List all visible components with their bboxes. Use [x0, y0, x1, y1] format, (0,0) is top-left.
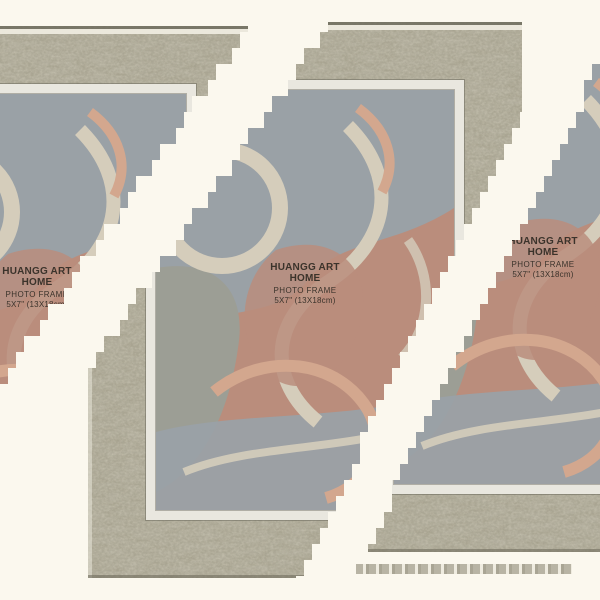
frame-bottom-edge-line	[326, 549, 600, 552]
brand-text: HUANGG ART HOME	[500, 236, 586, 258]
brand-text: HUANGG ART HOME	[0, 266, 80, 288]
size-text: 5X7" (13X18cm)	[262, 297, 348, 306]
product-text: PHOTO FRAME	[500, 261, 586, 270]
size-text: 5X7" (13X18cm)	[0, 301, 80, 310]
product-text: PHOTO FRAME	[262, 287, 348, 296]
size-text: 5X7" (13X18cm)	[500, 271, 586, 280]
insert-label: HUANGG ART HOME PHOTO FRAME 5X7" (13X18c…	[262, 262, 348, 306]
frame-opening: HUANGG ART HOME PHOTO FRAME 5X7" (13X18c…	[156, 90, 454, 510]
frame-top-highlight	[0, 29, 254, 34]
insert-label: HUANGG ART HOME PHOTO FRAME 5X7" (13X18c…	[500, 236, 586, 280]
brand-text: HUANGG ART HOME	[262, 262, 348, 284]
product-text: PHOTO FRAME	[0, 291, 80, 300]
glitch-fragment	[356, 564, 572, 574]
insert-label: HUANGG ART HOME PHOTO FRAME 5X7" (13X18c…	[0, 266, 80, 310]
product-photo: HUANGG ART HOME PHOTO FRAME 5X7" (13X18c…	[0, 0, 600, 600]
